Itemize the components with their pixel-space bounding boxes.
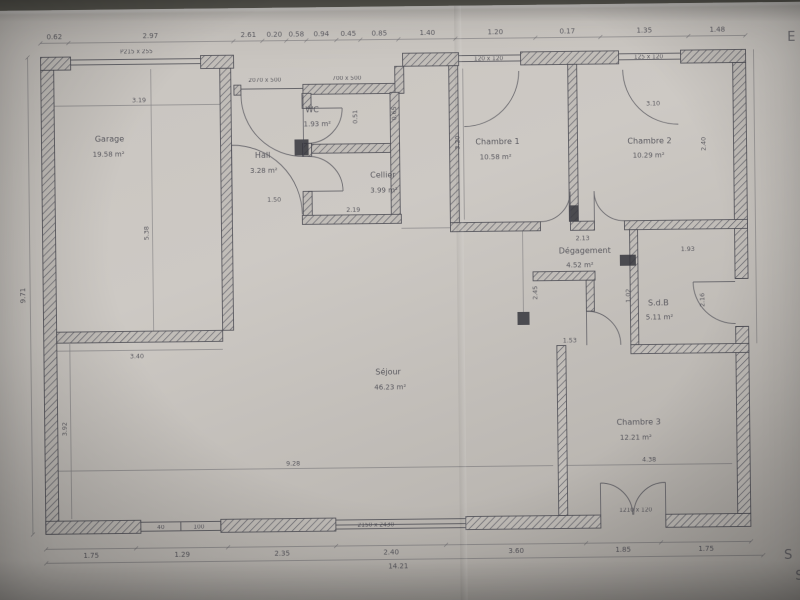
room-area-sdb: 5.11 m² (646, 313, 674, 321)
dim-label: 3.92 (62, 422, 69, 436)
wall-top-2 (520, 51, 618, 65)
wall-degagement-top-3 (624, 219, 747, 229)
dim-label: 0.58 (288, 30, 304, 38)
dim-label: 1.48 (709, 26, 725, 34)
wall-cellier-bottom (302, 214, 401, 224)
opening-label-small-window-2: 100 (193, 525, 204, 531)
wall-bottom-4 (666, 513, 751, 527)
dim-total-label: 14.21 (388, 562, 408, 570)
dim-label: 0.17 (559, 27, 575, 35)
room-label-chambre2: Chambre 2 (627, 136, 671, 145)
dim-label: 1.40 (419, 29, 435, 37)
margin-letter-s1: S (784, 548, 792, 563)
photo-backdrop: 0.62 2.97 2.61 0.20 0.58 0.94 0.45 0.85 … (0, 0, 800, 600)
room-label-sdb: S.d.B (648, 298, 669, 307)
dim-line-right (753, 49, 756, 343)
wall-wc-cellier (312, 143, 400, 153)
room-label-garage: Garage (95, 134, 124, 143)
floor-plan: 0.62 2.97 2.61 0.20 0.58 0.94 0.45 0.85 … (0, 0, 800, 600)
opening-label-porch-2: 700 x 500 (332, 76, 362, 82)
entry-threshold (241, 88, 303, 89)
dim-label: 9.28 (286, 460, 300, 467)
wall-chambre3-left (557, 345, 568, 515)
dim-label: 2.35 (274, 550, 290, 558)
dim-label: 2.61 (240, 31, 256, 39)
wall-garage-top-right (201, 55, 234, 68)
dim-label: 1.75 (83, 552, 99, 560)
dim-label: 1.50 (267, 197, 281, 204)
wall-right-upper (733, 62, 748, 278)
room-area-hall: 3.28 m² (250, 167, 278, 175)
room-area-chambre1: 10.58 m² (480, 153, 512, 161)
wall-porch-left (234, 85, 241, 95)
wall-sdb-bottom (631, 343, 749, 353)
chambre2-door-arc (594, 191, 624, 221)
dim-label: 0.94 (313, 30, 329, 38)
right-door-jambs (735, 278, 749, 326)
wall-bottom-1 (46, 520, 141, 534)
wall-garage-bottom (57, 330, 223, 343)
room-label-chambre1: Chambre 1 (475, 137, 519, 146)
room-area-chambre2: 10.29 m² (633, 151, 665, 159)
wall-degagement-top-1 (450, 222, 540, 232)
dim-label: 3.19 (132, 97, 146, 104)
wall-corridor (586, 280, 594, 311)
room-label-hall: Hall (255, 151, 270, 160)
dim-label: 2.40 (383, 548, 399, 556)
margin-letter-s2: S (795, 569, 800, 584)
dim-label: 3.20 (454, 136, 461, 150)
wall-right-lower (736, 326, 751, 513)
dim-left-label: 9.71 (19, 288, 27, 304)
wall-left (41, 70, 59, 534)
pier-sdb (620, 255, 636, 266)
room-label-cellier: Cellier (370, 170, 396, 179)
wall-top-1 (403, 53, 459, 67)
room-area-garage: 19.58 m² (93, 150, 125, 158)
room-area-cellier: 3.99 m² (370, 186, 398, 194)
margin-letters: E S S (778, 30, 800, 584)
dim-label: 3.40 (130, 353, 144, 360)
dim-label: 0.65 (391, 106, 398, 120)
dim-label: 2.40 (700, 137, 707, 151)
opening-label-chambre2-window: 125 x 120 (634, 54, 664, 60)
room-label-degagement: Dégagement (559, 245, 611, 256)
dim-label: 3.60 (508, 547, 524, 555)
dim-label: 0.85 (371, 29, 387, 37)
margin-letter-e: E (787, 30, 795, 45)
pier-wc (294, 139, 308, 155)
dim-label: 1.93 (681, 246, 695, 253)
wall-porch-right (303, 83, 403, 94)
top-dimensions: 0.62 2.97 2.61 0.20 0.58 0.94 0.45 0.85 … (46, 26, 725, 42)
paper-sheet: 0.62 2.97 2.61 0.20 0.58 0.94 0.45 0.85 … (0, 2, 800, 600)
dim-label: 2.13 (576, 235, 590, 242)
chambre1-window-arc (464, 71, 520, 127)
opening-label-small-window-1: 40 (157, 525, 165, 531)
dim-label: 1.75 (698, 545, 714, 553)
chambre2-window-arc (623, 69, 679, 125)
room-label-wc: WC (305, 105, 319, 114)
chambre3-door-arc (586, 311, 620, 345)
wall-top-3 (680, 49, 745, 63)
dim-label: 2.45 (532, 286, 539, 300)
interior-walls (54, 62, 751, 521)
room-label-chambre3: Chambre 3 (617, 417, 661, 426)
wall-sdb-left (630, 230, 639, 345)
opening-label-chambre1-window: 120 x 120 (474, 56, 504, 62)
dim-label: 0.45 (340, 30, 356, 38)
room-area-degagement: 4.52 m² (566, 261, 594, 269)
opening-label-garage-door: P215 x 255 (120, 49, 153, 55)
wall-degagement-bottom (533, 271, 595, 281)
wall-degagement-top-2 (570, 221, 594, 230)
wall-porch-stub (395, 66, 404, 93)
dim-label: 1.29 (174, 551, 190, 559)
dim-label: 1.53 (563, 337, 577, 344)
dim-label: 5.38 (143, 226, 150, 240)
dim-label: 0.62 (46, 33, 62, 41)
wall-garage-top-left (41, 57, 71, 70)
dim-label: 4.38 (642, 456, 656, 463)
dim-label: 2.19 (346, 207, 360, 214)
opening-label-chambre3-window: 1210 x 120 (619, 507, 652, 513)
opening-label-porch-1: 2070 x 500 (248, 78, 281, 84)
dim-label: 1.35 (636, 26, 652, 34)
dim-label: 1.20 (487, 28, 503, 36)
opening-label-bay-window: 2150 x 2430 (358, 522, 395, 528)
dim-label: 2.97 (142, 32, 158, 40)
room-area-wc: 1.93 m² (304, 120, 332, 128)
room-area-sejour: 46.23 m² (374, 383, 406, 391)
dim-label: 1.02 (625, 289, 632, 303)
dim-label: 0.51 (352, 110, 359, 124)
room-label-sejour: Séjour (375, 366, 401, 376)
dim-label: 0.20 (266, 31, 282, 39)
wall-bottom-3 (466, 515, 601, 530)
room-area-chambre3: 12.21 m² (620, 433, 652, 441)
wall-garage-right (220, 68, 234, 330)
garage-door-lines (71, 59, 201, 65)
dim-label: 2.16 (699, 293, 706, 307)
cellier-door-arc (308, 156, 343, 191)
small-windows (141, 521, 221, 531)
dim-label: 3.10 (646, 100, 660, 107)
dim-label: 1.85 (615, 546, 631, 554)
wall-bottom-2 (221, 518, 336, 532)
chambre1-door-arc (540, 191, 570, 221)
pier-sejour (517, 312, 529, 325)
bay-window (336, 519, 466, 529)
